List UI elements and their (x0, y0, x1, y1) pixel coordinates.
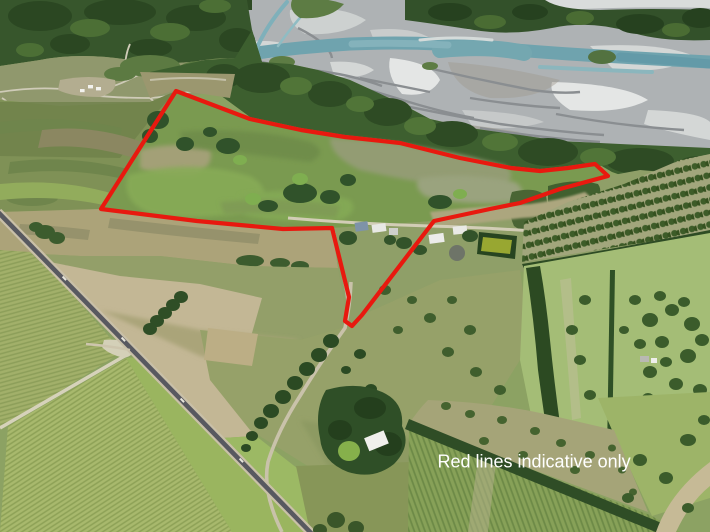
svg-text:Red lines indicative only: Red lines indicative only (438, 452, 631, 472)
